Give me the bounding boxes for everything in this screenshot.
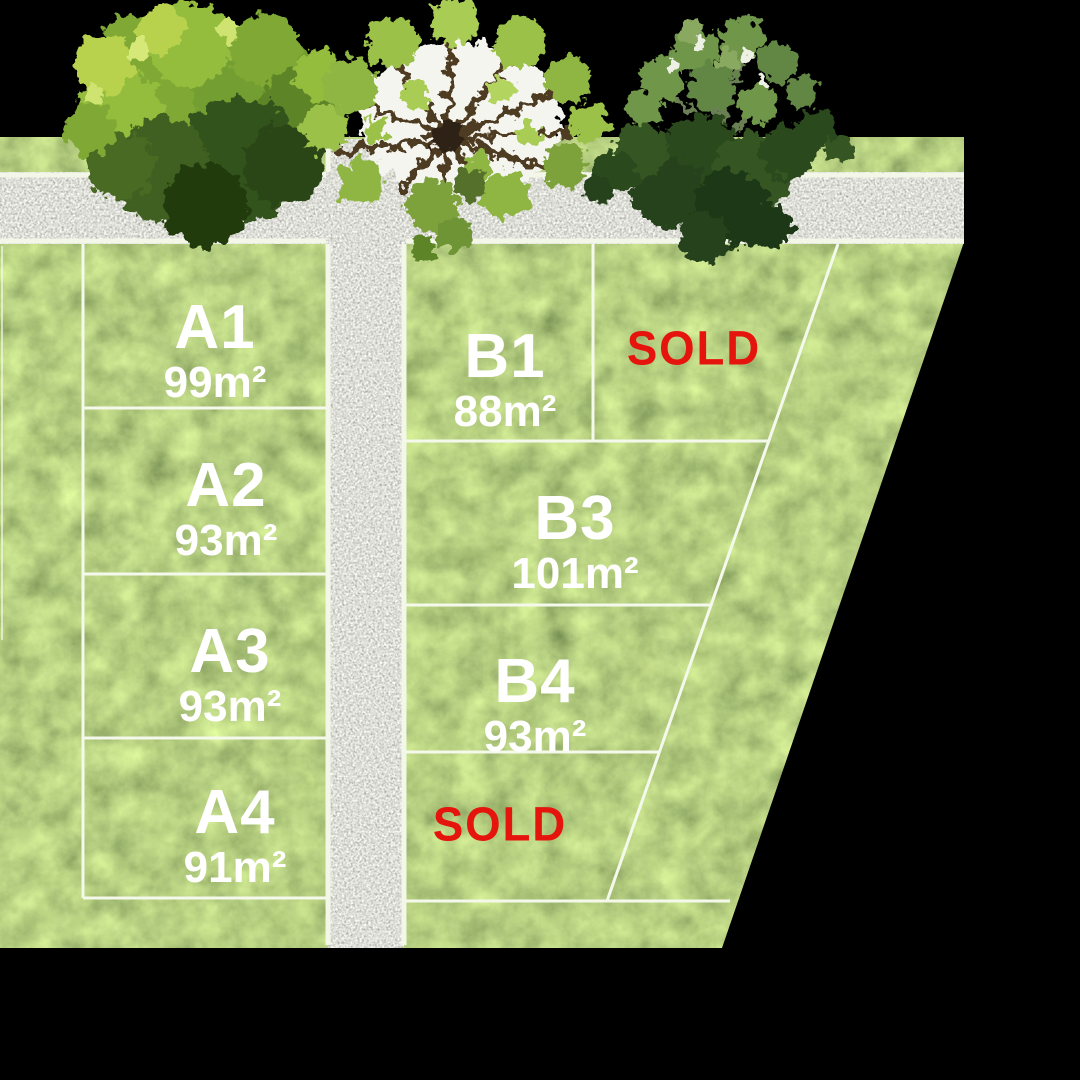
lot-region-b4[interactable] — [404, 605, 711, 752]
lot-region-a4[interactable] — [83, 738, 328, 898]
lot-region-a2[interactable] — [83, 408, 328, 574]
lot-region-a1[interactable] — [83, 245, 328, 408]
lot-region-b3[interactable] — [404, 441, 769, 605]
site-plan: A1 99m² A2 93m² A3 93m² A4 91m² B1 88m² … — [0, 0, 1080, 1080]
vertical-road — [326, 137, 406, 950]
lot-region-a3[interactable] — [83, 574, 328, 738]
lot-region-b1[interactable] — [404, 243, 593, 441]
site-plan-canvas — [0, 0, 1080, 1080]
